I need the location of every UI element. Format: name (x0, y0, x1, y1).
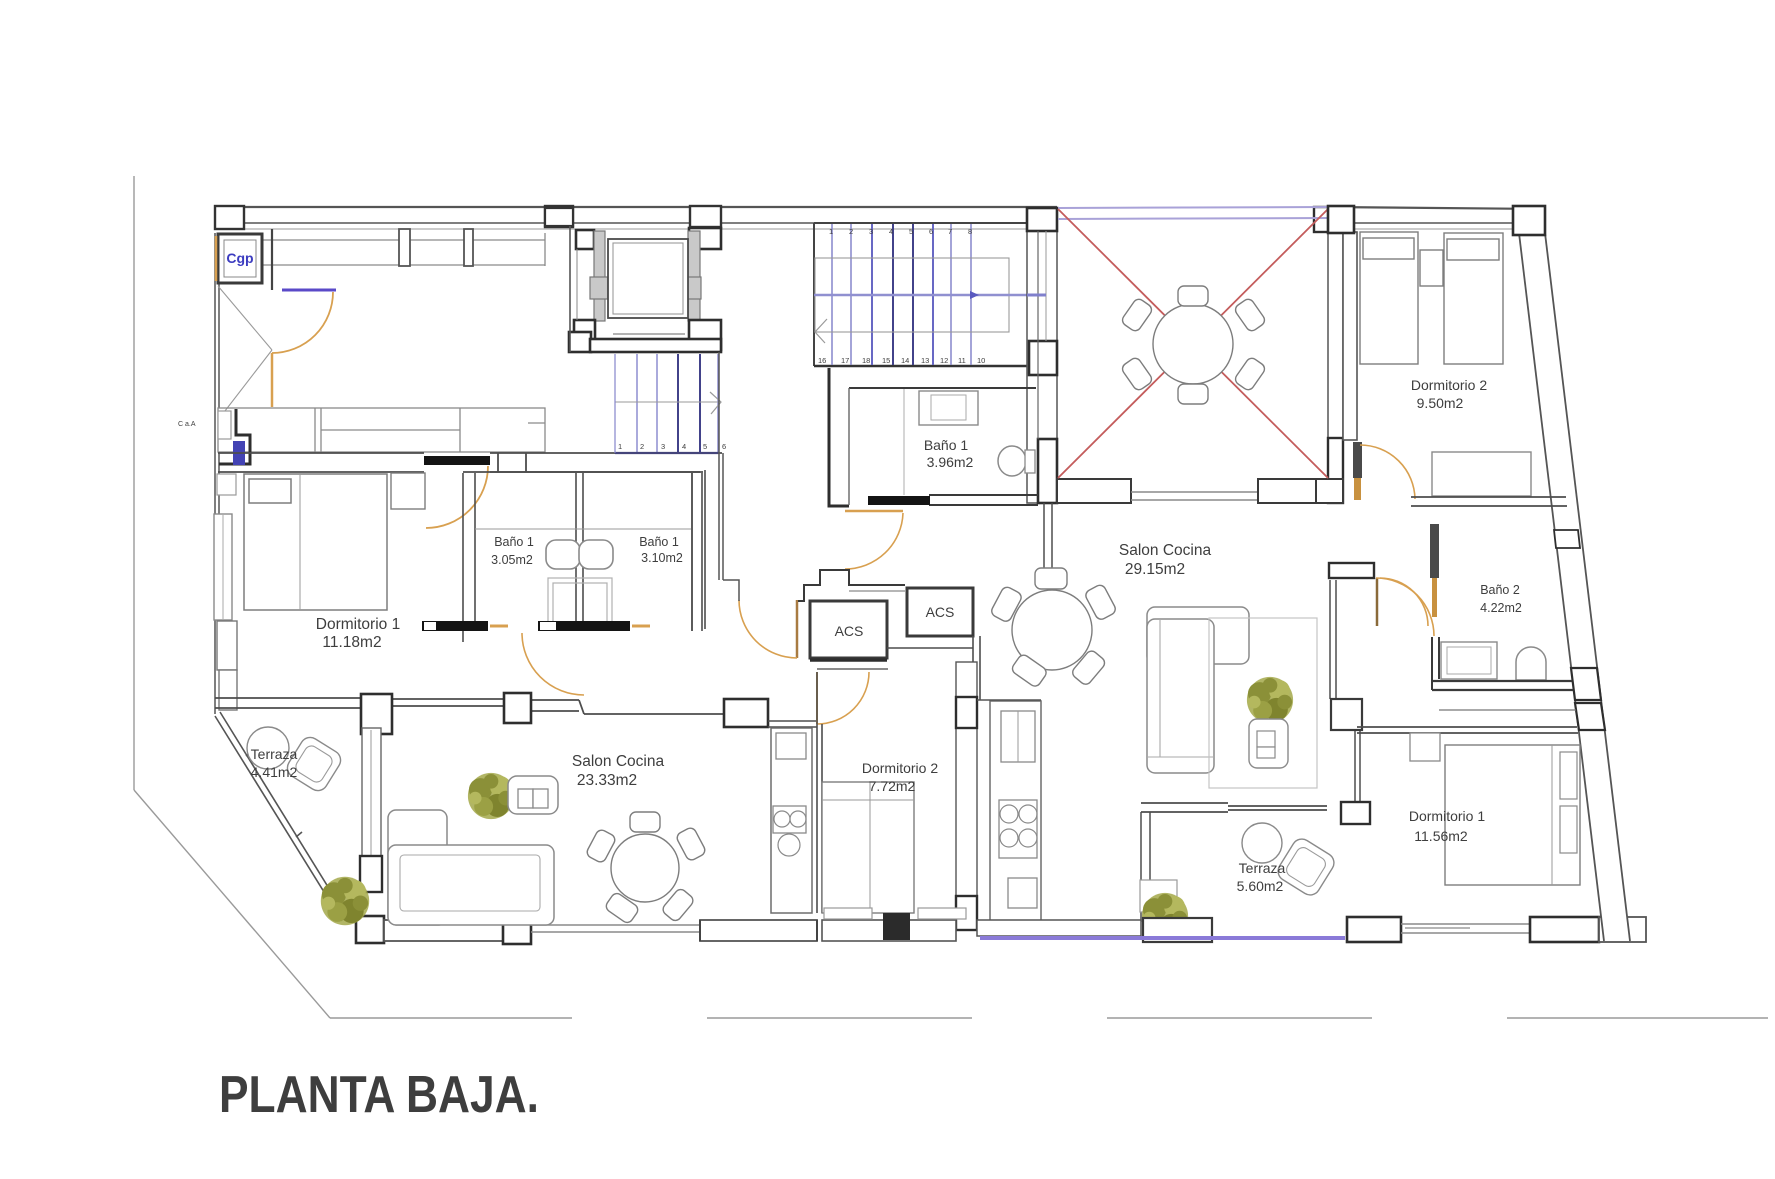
svg-text:Dormitorio 1: Dormitorio 1 (316, 616, 400, 633)
svg-text:10: 10 (977, 356, 985, 365)
svg-text:3: 3 (661, 442, 665, 451)
svg-text:4: 4 (682, 442, 686, 451)
svg-text:12: 12 (940, 356, 948, 365)
svg-text:Dormitorio 2: Dormitorio 2 (862, 760, 938, 776)
svg-text:Salon Cocina: Salon Cocina (1119, 542, 1212, 559)
svg-text:15: 15 (882, 356, 890, 365)
svg-text:5: 5 (909, 227, 913, 236)
svg-text:3.96m2: 3.96m2 (927, 454, 974, 470)
svg-text:4: 4 (889, 227, 893, 236)
svg-text:11.18m2: 11.18m2 (322, 634, 381, 651)
svg-text:Baño 1: Baño 1 (924, 437, 969, 453)
svg-text:11.56m2: 11.56m2 (1414, 828, 1468, 844)
svg-text:PLANTA BAJA.: PLANTA BAJA. (219, 1066, 539, 1124)
svg-text:Terraza: Terraza (1239, 860, 1286, 876)
svg-text:Dormitorio 1: Dormitorio 1 (1409, 808, 1485, 824)
svg-text:18: 18 (862, 356, 870, 365)
svg-text:16: 16 (818, 356, 826, 365)
svg-text:5.60m2: 5.60m2 (1237, 878, 1284, 894)
svg-text:5: 5 (703, 442, 707, 451)
svg-text:8: 8 (968, 227, 972, 236)
svg-text:Baño 1: Baño 1 (494, 535, 534, 549)
svg-text:Cgp: Cgp (226, 250, 253, 266)
svg-text:Dormitorio 2: Dormitorio 2 (1411, 377, 1487, 393)
svg-text:ACS: ACS (835, 623, 864, 639)
svg-text:2: 2 (849, 227, 853, 236)
svg-text:6: 6 (722, 442, 726, 451)
svg-text:13: 13 (921, 356, 929, 365)
svg-text:ACS: ACS (926, 604, 955, 620)
svg-text:29.15m2: 29.15m2 (1125, 561, 1185, 578)
svg-text:4.41m2: 4.41m2 (251, 764, 298, 780)
svg-text:1: 1 (829, 227, 833, 236)
svg-text:Salon Cocina: Salon Cocina (572, 753, 665, 770)
svg-text:Terraza: Terraza (251, 746, 298, 762)
svg-text:6: 6 (929, 227, 933, 236)
svg-text:Baño 1: Baño 1 (639, 535, 679, 549)
svg-text:7: 7 (948, 227, 952, 236)
svg-text:4.22m2: 4.22m2 (1480, 601, 1522, 615)
svg-text:11: 11 (958, 356, 966, 365)
svg-text:3.05m2: 3.05m2 (491, 553, 533, 567)
svg-text:9.50m2: 9.50m2 (1417, 395, 1464, 411)
svg-text:17: 17 (841, 356, 849, 365)
svg-text:7.72m2: 7.72m2 (869, 778, 916, 794)
svg-text:3: 3 (869, 227, 873, 236)
svg-text:3.10m2: 3.10m2 (641, 551, 683, 565)
svg-text:1: 1 (618, 442, 622, 451)
svg-text:C a.A: C a.A (178, 421, 196, 428)
svg-text:2: 2 (640, 442, 644, 451)
svg-text:23.33m2: 23.33m2 (577, 772, 637, 789)
svg-text:14: 14 (901, 356, 909, 365)
svg-text:Baño 2: Baño 2 (1480, 583, 1520, 597)
